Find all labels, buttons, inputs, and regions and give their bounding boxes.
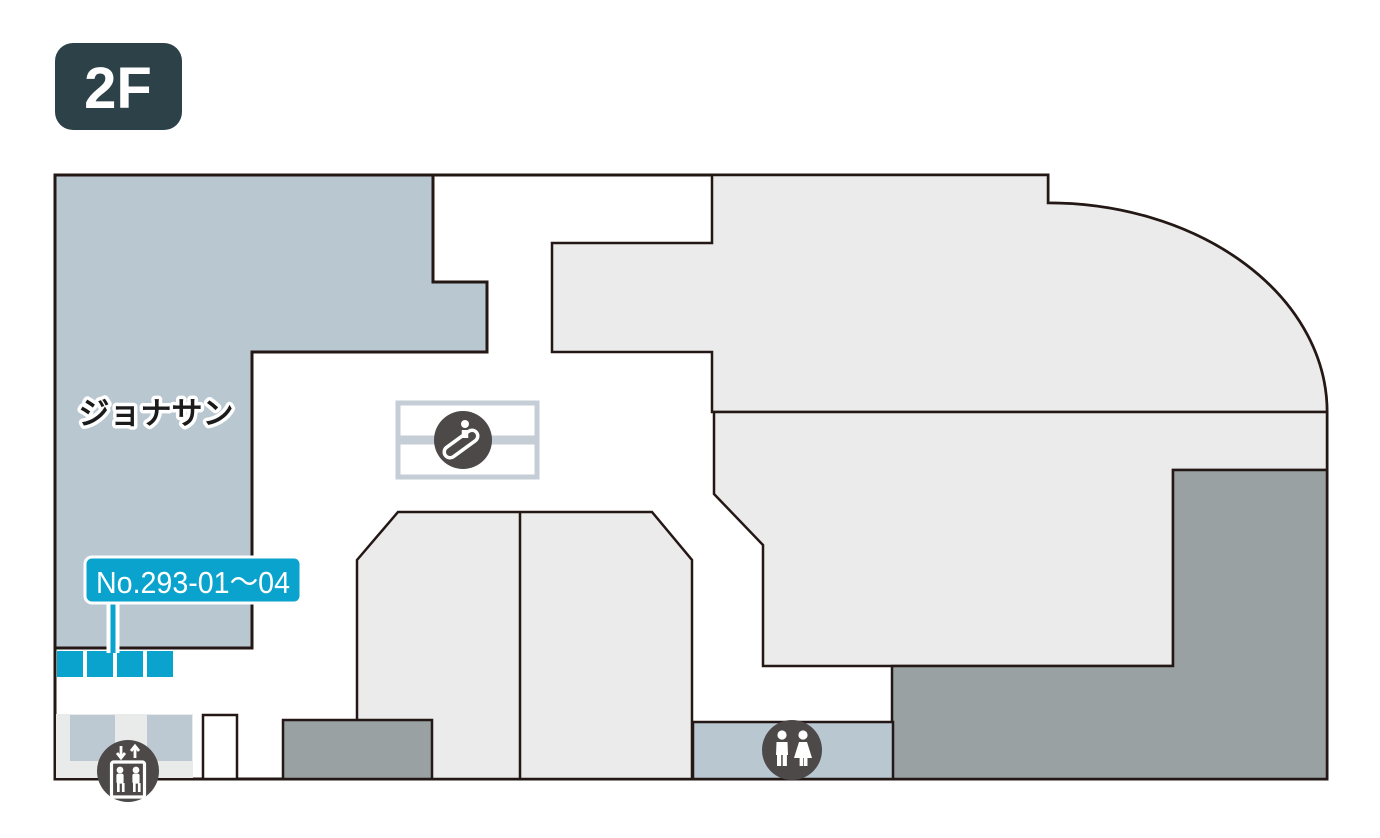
unit-square-02	[87, 651, 113, 677]
callout-label: No.293-01〜04	[96, 565, 290, 600]
tenant-area-upper-right	[552, 175, 1327, 412]
unit-square-03	[117, 651, 143, 677]
floor-map-page: No.293-01〜04 ジョナサン	[0, 0, 1380, 838]
service-area-center-bottom	[283, 720, 432, 779]
unit-square-04	[147, 651, 173, 677]
store-label: ジョナサン	[79, 396, 234, 431]
doorway	[203, 715, 237, 779]
escalator-icon	[434, 411, 492, 469]
floor-badge: 2F	[55, 43, 182, 130]
elevator-icon	[97, 740, 159, 802]
floor-map: No.293-01〜04 ジョナサン	[0, 0, 1380, 838]
floor-badge-label: 2F	[84, 56, 152, 121]
unit-square-01	[57, 651, 83, 677]
unit-squares	[57, 651, 173, 677]
restroom-icon	[762, 720, 822, 780]
